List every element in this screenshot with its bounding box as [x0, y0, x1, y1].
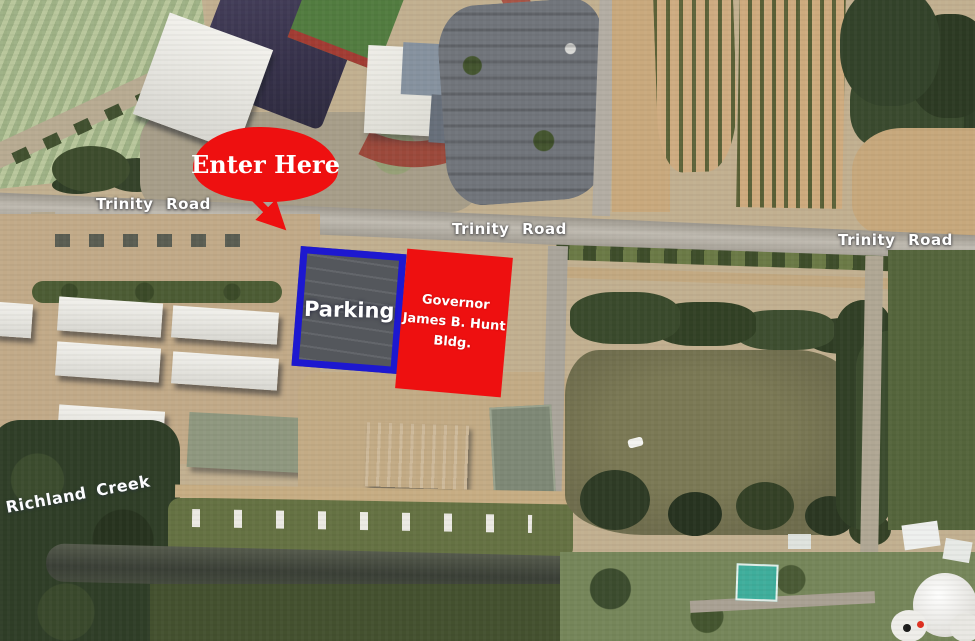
tree-band-pond-north	[570, 292, 680, 344]
road-label-trinity-3: Trinity Road	[838, 231, 953, 249]
dirt-patch-topright	[852, 128, 975, 236]
road-label-trinity-2: Trinity Road	[452, 220, 567, 238]
water-tank-small	[950, 613, 975, 641]
shed-row	[55, 234, 255, 247]
tank-vent-dark	[903, 624, 911, 632]
parking-outline-box: Parking	[291, 246, 406, 374]
tree-strip-right-edge	[888, 250, 975, 530]
white-house	[901, 521, 940, 551]
white-house	[788, 534, 811, 549]
barn-building	[55, 341, 161, 382]
parking-lot-top	[435, 0, 614, 208]
aerial-map-canvas: Trinity Road Trinity Road Trinity Road R…	[0, 0, 975, 641]
hunt-building-box: Governor James B. Hunt Bldg.	[395, 249, 513, 398]
row-crop-field-1	[653, 0, 739, 173]
teal-roof-building	[735, 563, 778, 601]
tree-band-pond-south	[580, 470, 650, 530]
white-house	[942, 538, 972, 563]
barn-building	[0, 302, 33, 339]
parking-label: Parking	[303, 297, 394, 323]
tree-cluster-topright	[840, 0, 940, 106]
tree-cluster-left	[52, 146, 130, 192]
enter-here-arrow-icon	[236, 190, 308, 246]
row-crop-field-2	[736, 0, 846, 209]
enter-here-label: Enter Here	[191, 150, 340, 179]
road-label-trinity-1: Trinity Road	[96, 195, 211, 213]
barn-building	[57, 296, 163, 337]
flat-roof-building	[187, 412, 306, 473]
large-barn	[365, 422, 469, 490]
tank-vent-red	[917, 621, 924, 628]
hunt-building-label: Governor James B. Hunt Bldg.	[400, 288, 508, 357]
